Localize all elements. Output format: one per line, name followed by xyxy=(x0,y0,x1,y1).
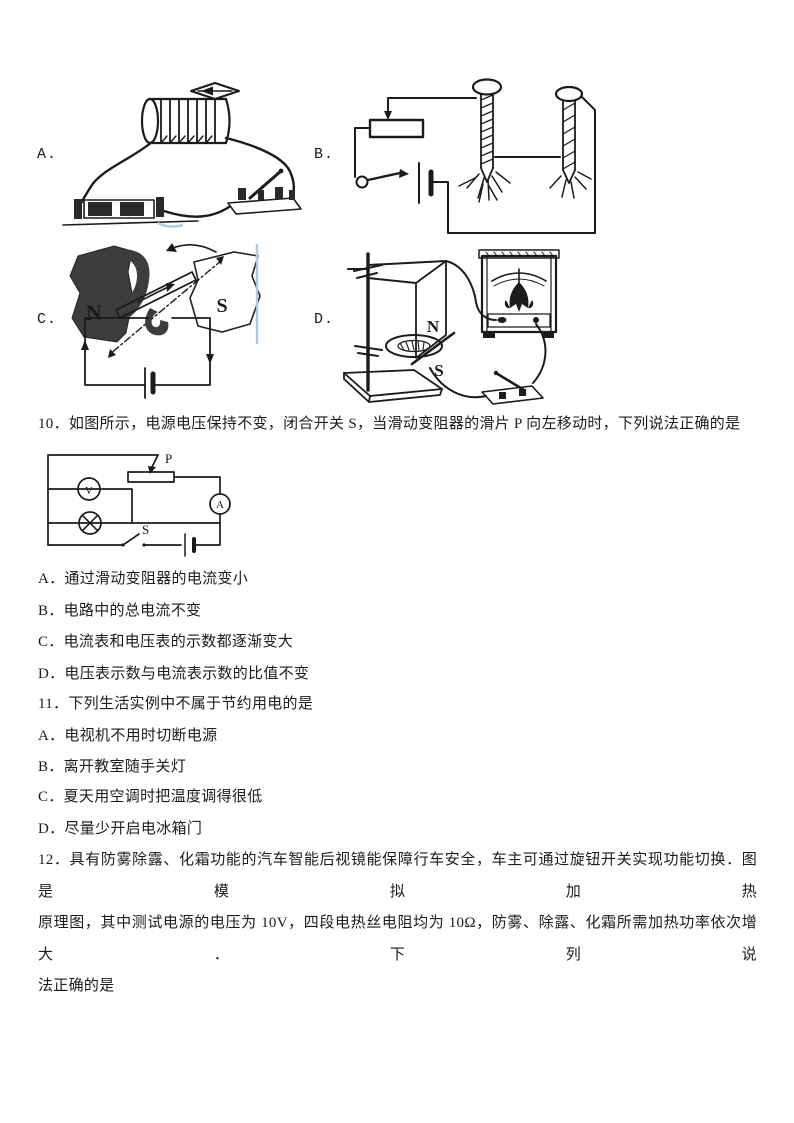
screw-electromagnet-right xyxy=(550,87,591,198)
figure-d-induction-galvanometer-diagram: N S xyxy=(336,240,654,415)
switch xyxy=(357,169,410,188)
battery-cell xyxy=(185,534,194,556)
q10-circuit-diagram: P V A S xyxy=(38,446,258,560)
question-11-stem: 11．下列生活实例中不属于节约用电的是 xyxy=(38,694,313,715)
question-10-stem: 10．如图所示，电源电压保持不变，闭合开关 S，当滑动变阻器的滑片 P 向左移动… xyxy=(38,414,740,435)
figure-d-label: D. xyxy=(314,310,334,330)
question-12-line-2: 原理图，其中测试电源的电压为 10V，四段电热丝电阻均为 10Ω，防雾、除露、化… xyxy=(38,908,757,971)
ammeter-label: A xyxy=(216,499,224,511)
galvanometer xyxy=(479,250,559,338)
figure-b-electromagnet-screws-diagram xyxy=(345,70,645,245)
figure-a-solenoid-compass-diagram xyxy=(60,70,318,238)
slider-p-label: P xyxy=(165,451,172,466)
n-pole-label: N xyxy=(86,300,102,325)
magnet-n-pole: N xyxy=(70,246,150,342)
question-11-option-a: A．电视机不用时切断电源 xyxy=(38,726,217,747)
scan-artifact xyxy=(158,223,183,227)
magnet-s-pole: S xyxy=(190,252,260,332)
ammeter: A xyxy=(210,494,230,514)
battery-pack xyxy=(63,197,198,225)
needle-ornament xyxy=(505,282,533,312)
question-12-stem: 12．具有防雾除露、化霜功能的汽车智能后视镜能保障行车安全，车主可通过旋钮开关实… xyxy=(38,845,757,1003)
voltmeter-label: V xyxy=(85,485,93,497)
switch-s-label: S xyxy=(142,522,149,537)
current-arrow-down xyxy=(206,354,214,364)
question-10-option-d: D．电压表示数与电流表示数的比值不变 xyxy=(38,664,309,685)
switch: S xyxy=(121,522,149,547)
circuit-wires xyxy=(355,97,595,233)
question-12-line-1: 12．具有防雾除露、化霜功能的汽车智能后视镜能保障行车安全，车主可通过旋钮开关实… xyxy=(38,845,757,908)
knife-switch xyxy=(228,169,301,214)
compass-icon xyxy=(191,83,239,99)
question-10-option-a: A．通过滑动变阻器的电流变小 xyxy=(38,569,248,590)
figure-a-label: A. xyxy=(37,145,57,165)
exam-document-page: A. B. C. D. xyxy=(0,0,794,1123)
question-10-option-b: B．电路中的总电流不变 xyxy=(38,601,201,622)
connecting-wires xyxy=(430,261,545,397)
current-arrow-up xyxy=(81,340,89,350)
question-10-option-c: C．电流表和电压表的示数都逐渐变大 xyxy=(38,632,293,653)
rheostat xyxy=(370,120,423,137)
question-11-option-c: C．夏天用空调时把温度调得很低 xyxy=(38,787,263,808)
n-pole-label: N xyxy=(427,317,440,336)
rod-clamp xyxy=(145,308,168,335)
solenoid-coil xyxy=(142,99,230,143)
question-11-option-d: D．尽量少开启电冰箱门 xyxy=(38,819,202,840)
question-12-line-3: 法正确的是 xyxy=(38,971,757,1003)
switch-on-board xyxy=(482,371,543,404)
figure-c-motor-force-diagram: N S xyxy=(54,238,308,406)
question-11-option-b: B．离开教室随手关灯 xyxy=(38,757,186,778)
s-pole-label: S xyxy=(216,295,227,317)
circuit-wires xyxy=(48,455,220,545)
battery-cell xyxy=(419,163,431,203)
rheostat xyxy=(128,472,174,482)
